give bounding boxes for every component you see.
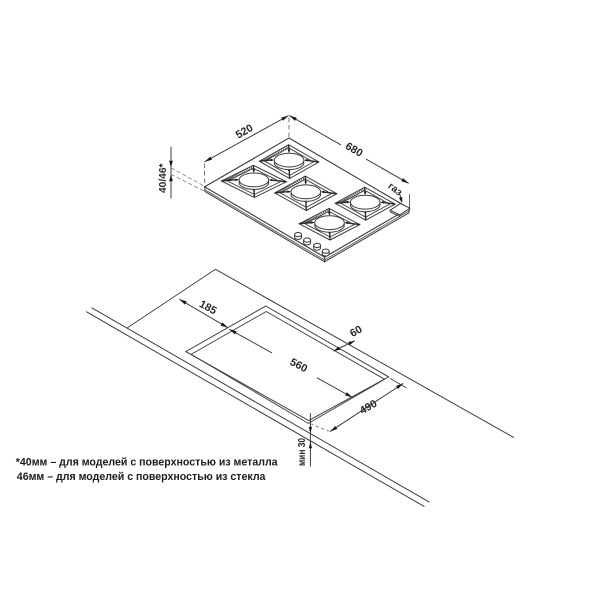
svg-text:520: 520	[234, 122, 256, 141]
svg-text:680: 680	[343, 140, 365, 159]
svg-text:560: 560	[288, 356, 310, 375]
svg-text:40/46*: 40/46*	[158, 163, 169, 193]
svg-text:490: 490	[358, 398, 380, 417]
svg-text:60: 60	[348, 324, 364, 340]
svg-text:мин 30: мин 30	[297, 438, 308, 466]
svg-text:46мм – для моделей с поверхнос: 46мм – для моделей с поверхностью из сте…	[17, 471, 266, 483]
svg-text:*40мм – для моделей с поверхно: *40мм – для моделей с поверхностью из ме…	[16, 456, 278, 468]
svg-text:185: 185	[197, 298, 219, 317]
